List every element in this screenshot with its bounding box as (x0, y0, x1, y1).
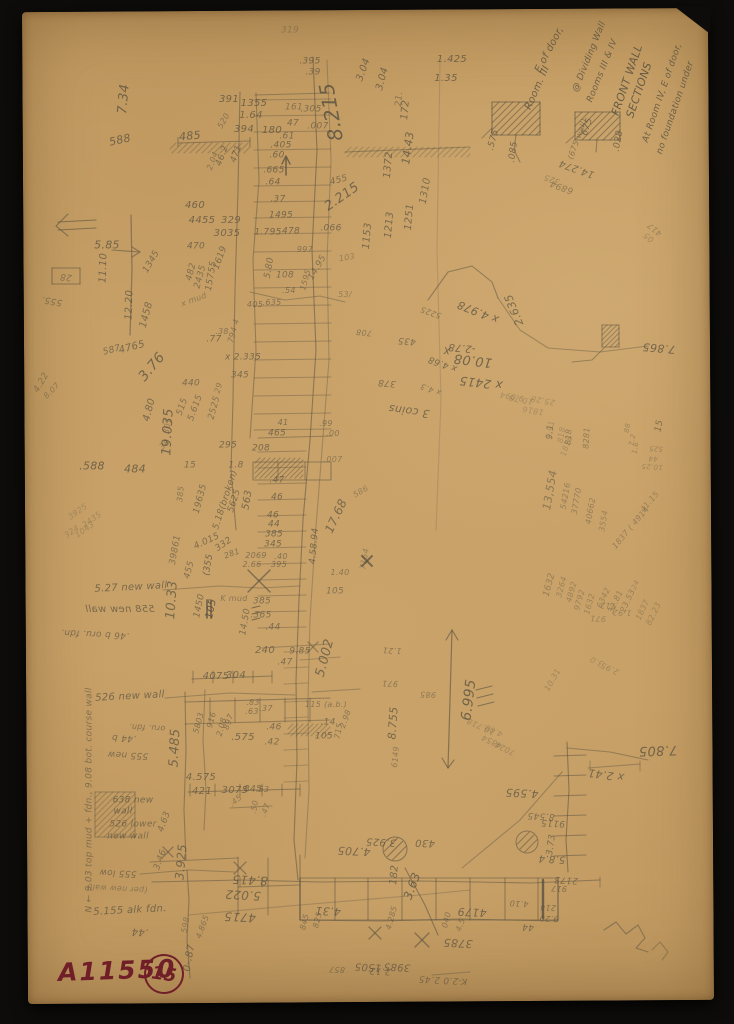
torn-corner (674, 6, 710, 34)
paper-sheet (22, 8, 714, 1004)
scanned-document: E of door,Room. III@ Dividing WallRooms … (0, 0, 734, 1024)
